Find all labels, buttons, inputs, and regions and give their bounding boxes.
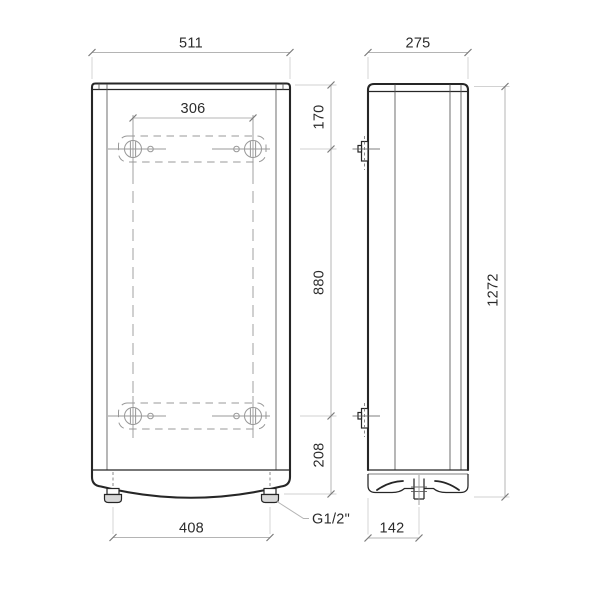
- front-mounting-bracket-bottom: [108, 403, 270, 429]
- side-pipe-connection: [411, 475, 427, 505]
- front-view: [92, 84, 290, 503]
- dimension-vertical-chain: 170 880 208: [284, 82, 337, 498]
- side-bottom-cap: [368, 474, 468, 505]
- label-g12: G1/2": [312, 512, 350, 528]
- dim-label-306: 306: [180, 101, 205, 117]
- dimension-width-top-511: 511: [89, 36, 294, 80]
- dimension-height-1272: 1272: [474, 83, 510, 501]
- front-bottom-cap: [92, 470, 290, 498]
- front-mounting-bracket-top: [108, 136, 270, 162]
- side-wall-bracket-top: [353, 136, 381, 170]
- dim-label-511: 511: [179, 36, 203, 52]
- dimension-depth-bottom-142: 142: [365, 498, 423, 542]
- technical-drawing-canvas: 511 306 170 880 208 408 G1/2": [0, 0, 600, 600]
- side-body-outline: [368, 84, 468, 470]
- water-heater-dimension-drawing: 511 306 170 880 208 408 G1/2": [0, 0, 600, 600]
- dim-label-142: 142: [379, 521, 404, 537]
- dim-label-275: 275: [405, 36, 430, 52]
- dim-label-170: 170: [312, 104, 328, 129]
- dim-label-1272: 1272: [486, 273, 502, 306]
- dim-label-408: 408: [179, 521, 204, 537]
- dimension-width-bottom-408: 408: [110, 507, 274, 541]
- dimension-depth-top-275: 275: [365, 36, 472, 80]
- pipe-nipple: [105, 495, 122, 503]
- pipe-nipple: [262, 495, 279, 503]
- dimension-mount-width-306: 306: [130, 101, 257, 122]
- leader-line: [277, 502, 309, 519]
- side-view: [353, 84, 469, 505]
- connection-thread-callout: G1/2": [277, 502, 350, 528]
- dim-label-880: 880: [312, 270, 328, 295]
- front-mounting-centerlines: [133, 115, 253, 438]
- side-wall-bracket-bottom: [353, 403, 381, 437]
- dim-label-208: 208: [312, 442, 328, 467]
